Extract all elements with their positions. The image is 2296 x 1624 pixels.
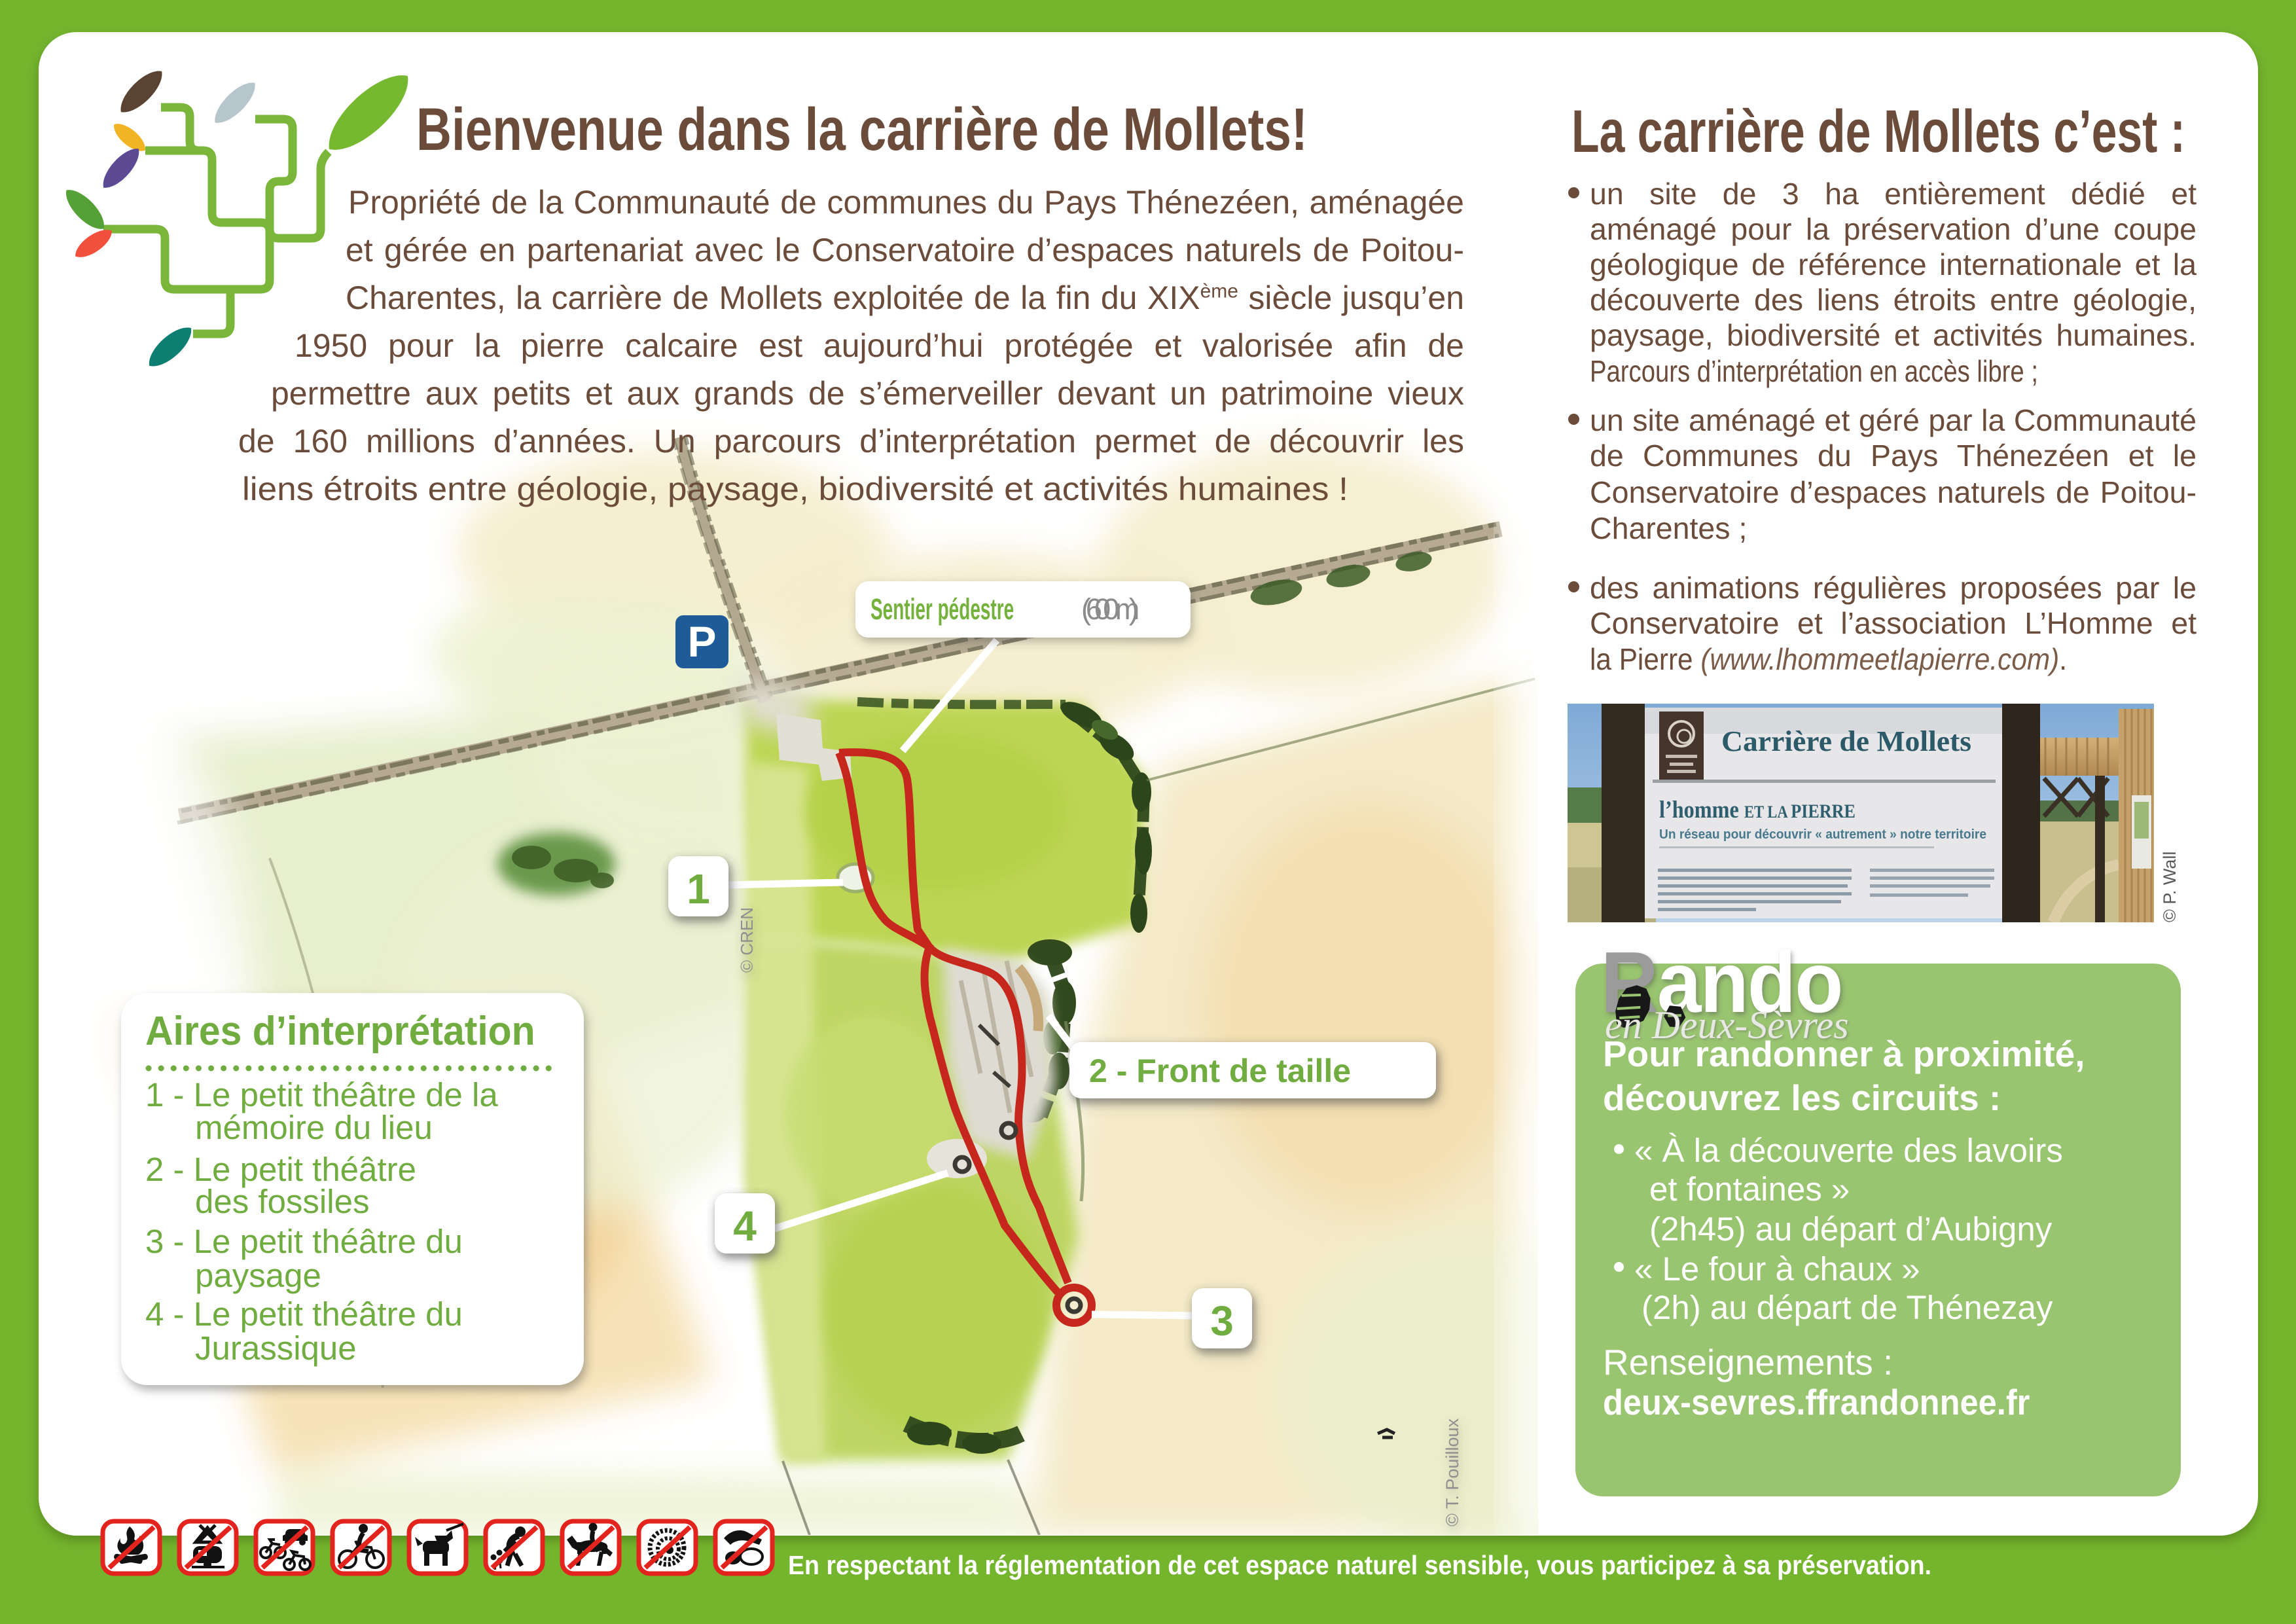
svg-text:3: 3 — [1210, 1297, 1234, 1344]
svg-text:4: 4 — [733, 1202, 757, 1250]
svg-text:© T. Pouilloux: © T. Pouilloux — [1443, 1418, 1462, 1526]
svg-text:2 - Front de taille: 2 - Front de taille — [1089, 1053, 1351, 1089]
svg-text:Sentier pédestre (600 m): Sentier pédestre (600 m) — [870, 592, 1139, 626]
svg-text:1: 1 — [687, 865, 710, 912]
svg-text:© CREN: © CREN — [737, 907, 757, 973]
svg-text:Un réseau pour découvrir « aut: Un réseau pour découvrir « autrement » n… — [1659, 827, 1986, 842]
svg-text:Carrière de Mollets: Carrière de Mollets — [1721, 725, 1971, 757]
